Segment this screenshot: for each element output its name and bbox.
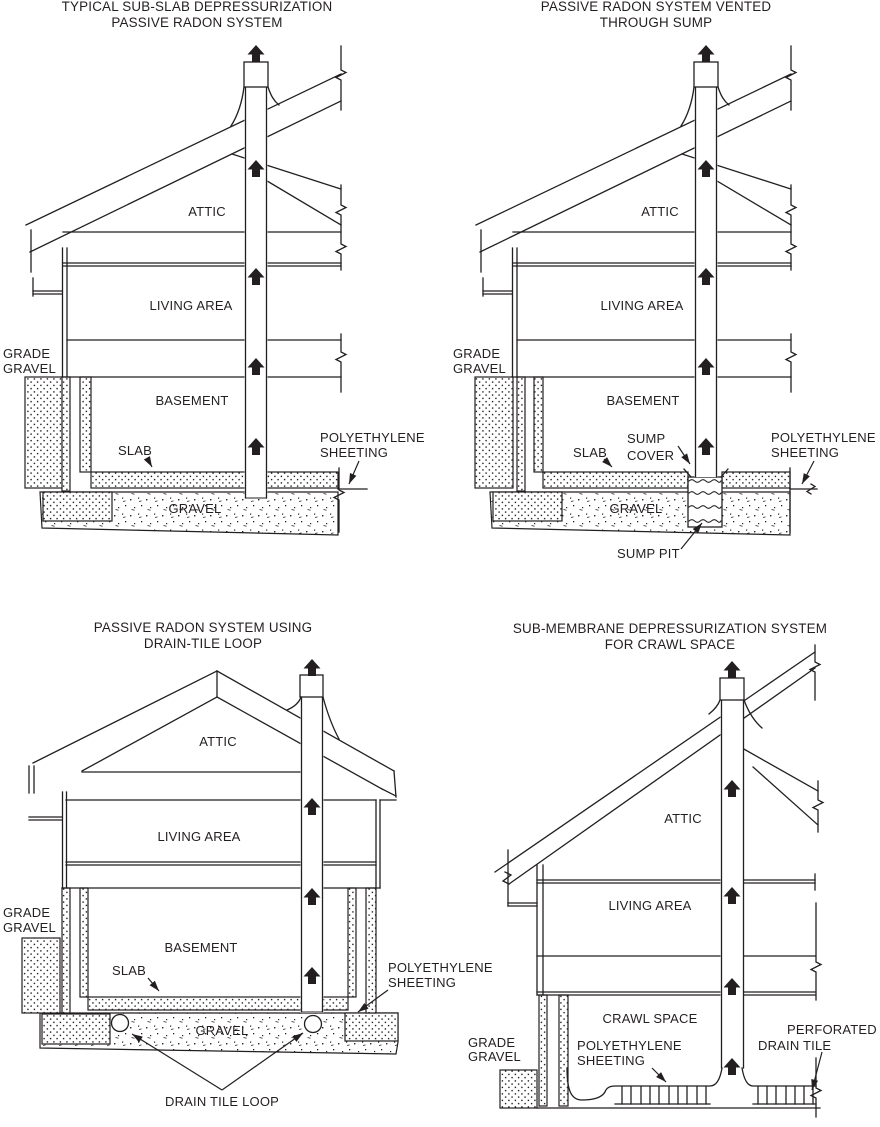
foundation-wall-inner-right (348, 888, 356, 997)
radon-mitigation-figure: TYPICAL SUB-SLAB DEPRESSURIZATION PASSIV… (0, 0, 880, 1122)
floor-lines (29, 766, 396, 888)
label-drain-tile-loop: DRAIN TILE LOOP (165, 1094, 279, 1109)
foundation-wall-inner-left (80, 888, 88, 997)
airflow-arrow-icon (248, 45, 265, 62)
label-grade-gravel-1: GRADE (3, 905, 50, 920)
leader-perforated-tile (812, 1052, 822, 1090)
foundation-wall-inner (534, 377, 543, 472)
foundation-wall-outer (517, 377, 525, 491)
label-slab: SLAB (112, 963, 146, 978)
label-grade-gravel-1: GRADE (3, 346, 50, 361)
airflow-arrow-icon (724, 661, 741, 678)
crawl-wall-outer (539, 995, 547, 1106)
label-grade-gravel-2: GRAVEL (468, 1049, 521, 1064)
sump-pit (684, 469, 728, 527)
panel-typical-sub-slab: TYPICAL SUB-SLAB DEPRESSURIZATION PASSIV… (3, 0, 425, 535)
roof-lines (495, 652, 818, 884)
label-attic: ATTIC (188, 204, 226, 219)
leader-slab (148, 978, 159, 991)
vent-pipe (287, 675, 339, 1013)
airflow-arrow-icon (698, 45, 715, 62)
panel-vented-through-sump: PASSIVE RADON SYSTEM VENTED THROUGH SUMP… (453, 0, 876, 561)
slab-band-left (543, 472, 688, 488)
panel3-title-line2: DRAIN-TILE LOOP (144, 636, 262, 651)
leader-slab (147, 458, 152, 467)
panel1-title-line2: PASSIVE RADON SYSTEM (111, 15, 282, 30)
label-sump-cover-2: COVER (627, 448, 674, 463)
label-living-area: LIVING AREA (608, 898, 691, 913)
label-basement: BASEMENT (164, 940, 237, 955)
slab-band-right (722, 472, 790, 488)
label-gravel: GRAVEL (196, 1023, 249, 1038)
grade-gravel-block (500, 1070, 537, 1108)
footing-left (42, 1014, 110, 1044)
foundation-wall-outer-right (366, 888, 376, 1013)
footing (43, 492, 112, 521)
label-attic: ATTIC (664, 811, 702, 826)
label-grade-gravel-2: GRAVEL (3, 920, 56, 935)
radon-systems-diagram: TYPICAL SUB-SLAB DEPRESSURIZATION PASSIV… (0, 0, 880, 1122)
polyethylene-membrane (567, 1068, 722, 1100)
label-crawl-space: CRAWL SPACE (603, 1011, 698, 1026)
label-perforated-2: DRAIN TILE (758, 1038, 831, 1053)
leader-slab (604, 459, 612, 467)
label-grade-gravel-2: GRAVEL (3, 361, 56, 376)
label-polyethylene-2: SHEETING (771, 445, 839, 460)
foundation-wall-outer (62, 377, 70, 491)
leader-polyethylene (349, 461, 359, 484)
label-basement: BASEMENT (155, 393, 228, 408)
roof-flashing-left (231, 87, 244, 126)
roof-flashing-left (287, 697, 301, 710)
panel1-title-line1: TYPICAL SUB-SLAB DEPRESSURIZATION (62, 0, 333, 14)
footing (493, 492, 562, 521)
label-living-area: LIVING AREA (149, 298, 232, 313)
panel4-title-line2: FOR CRAWL SPACE (605, 637, 735, 652)
panel3-title-line1: PASSIVE RADON SYSTEM USING (94, 620, 313, 635)
label-attic: ATTIC (199, 734, 237, 749)
floor-lines (508, 850, 820, 1108)
label-grade-gravel-1: GRADE (453, 346, 500, 361)
roof-lines (26, 74, 341, 252)
label-gravel: GRAVEL (610, 501, 663, 516)
roof-flashing-right (718, 87, 729, 105)
panel-crawl-space: SUB-MEMBRANE DEPRESSURIZATION SYSTEM FOR… (468, 621, 877, 1117)
panel4-title-line1: SUB-MEMBRANE DEPRESSURIZATION SYSTEM (513, 621, 827, 636)
polyethylene-membrane-right (742, 1068, 816, 1086)
foundation-wall-outer-left (62, 888, 70, 1013)
label-polyethylene-1: POLYETHYLENE (577, 1038, 682, 1053)
pipe-cap (694, 62, 718, 87)
label-living-area: LIVING AREA (157, 829, 240, 844)
label-sump-cover-1: SUMP (627, 431, 665, 446)
roof-lines (476, 74, 791, 252)
label-grade-gravel-1: GRADE (468, 1035, 515, 1050)
panel2-title-line1: PASSIVE RADON SYSTEM VENTED (541, 0, 772, 14)
grade-gravel-block (22, 938, 60, 1013)
label-basement: BASEMENT (606, 393, 679, 408)
label-living-area: LIVING AREA (600, 298, 683, 313)
airflow-arrow-icon (304, 659, 321, 676)
label-sump-pit: SUMP PIT (617, 546, 680, 561)
drain-tile-right (305, 1016, 322, 1033)
grade-gravel-block (25, 377, 63, 488)
slab-band (91, 472, 338, 488)
panel-drain-tile-loop: PASSIVE RADON SYSTEM USING DRAIN-TILE LO… (3, 620, 493, 1109)
pipe-cap (244, 62, 268, 87)
label-slab: SLAB (573, 445, 607, 460)
pipe-cap (720, 678, 744, 700)
foundation-wall-inner (80, 377, 91, 472)
perforated-drain-tile (615, 1087, 816, 1104)
leader-polyethylene (652, 1068, 666, 1082)
grade-gravel-block (475, 377, 513, 488)
roof-flashing-right (268, 87, 279, 105)
label-attic: ATTIC (641, 204, 679, 219)
label-gravel: GRAVEL (169, 501, 222, 516)
label-polyethylene-2: SHEETING (388, 975, 456, 990)
leader-polyethylene (802, 461, 814, 484)
label-polyethylene-1: POLYETHYLENE (320, 430, 425, 445)
label-polyethylene-1: POLYETHYLENE (388, 960, 493, 975)
roof-flashing-left (681, 87, 694, 126)
roof-flashing-right (744, 700, 762, 728)
label-polyethylene-2: SHEETING (577, 1053, 645, 1068)
crawl-wall-inner (559, 995, 568, 1106)
panel2-title-line2: THROUGH SUMP (600, 15, 713, 30)
label-grade-gravel-2: GRAVEL (453, 361, 506, 376)
label-slab: SLAB (118, 443, 152, 458)
label-polyethylene-1: POLYETHYLENE (771, 430, 876, 445)
roof-flashing-left (709, 700, 720, 714)
drain-tile-left (112, 1015, 129, 1032)
leader-sump-cover (678, 446, 690, 464)
label-perforated-1: PERFORATED (787, 1022, 877, 1037)
pipe-cap (300, 675, 323, 697)
label-polyethylene-2: SHEETING (320, 445, 388, 460)
footing-right (345, 1013, 398, 1041)
